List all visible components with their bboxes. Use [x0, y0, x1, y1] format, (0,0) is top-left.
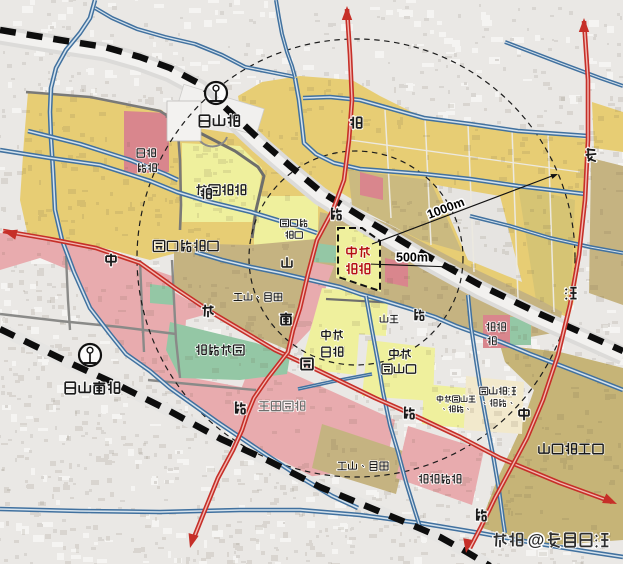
- svg-text:@: @: [528, 530, 545, 549]
- svg-text:500m: 500m: [396, 250, 428, 264]
